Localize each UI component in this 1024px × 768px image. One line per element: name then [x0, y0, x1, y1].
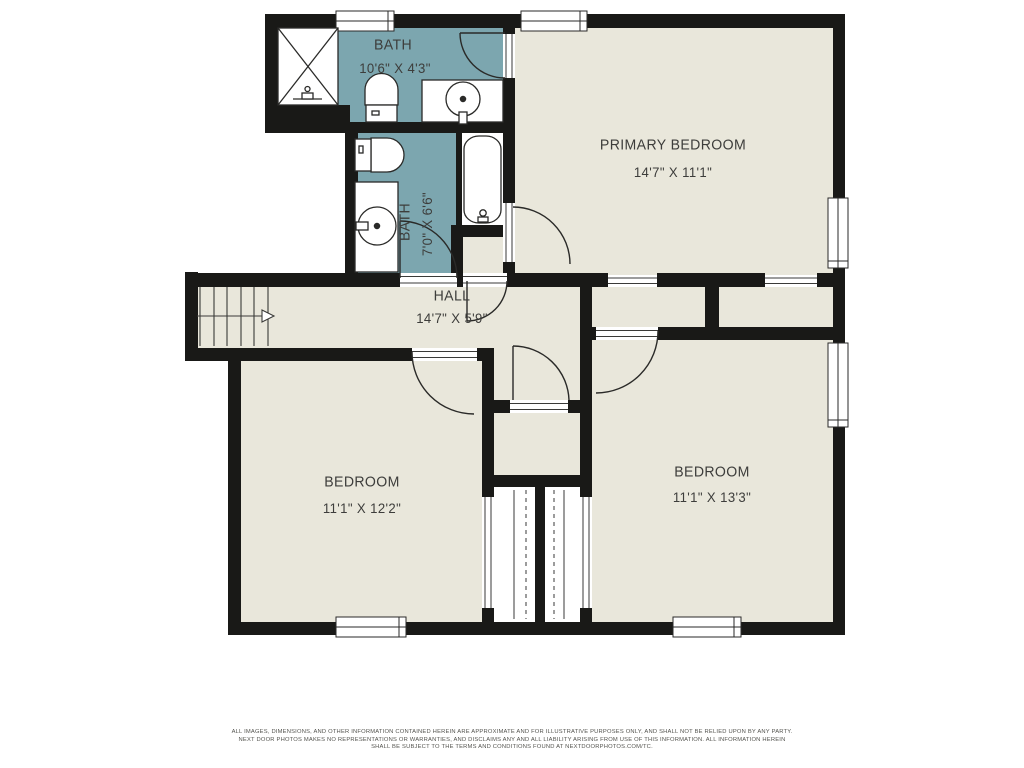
- wall: [503, 78, 515, 203]
- sink-icon: [355, 182, 398, 272]
- window: [521, 11, 587, 31]
- sink-icon: [422, 80, 503, 124]
- wall: [817, 273, 845, 287]
- wall: [185, 273, 400, 287]
- window: [828, 343, 848, 427]
- wall: [228, 348, 241, 622]
- bathtub-icon: [464, 136, 501, 223]
- wall: [535, 487, 545, 622]
- bedroom2-label: BEDROOM: [674, 464, 749, 481]
- window: [673, 617, 741, 637]
- closet-slider-opening: [482, 497, 494, 608]
- closet-bifold-opening: [765, 275, 817, 286]
- window: [336, 617, 406, 637]
- closet-slider-opening: [580, 497, 592, 608]
- bath2-dims: 7'0" X 6'6": [419, 192, 435, 256]
- wall: [457, 273, 463, 287]
- wall: [482, 348, 494, 497]
- hall-label: HALL: [434, 288, 471, 305]
- bath1-label: BATH: [374, 37, 412, 54]
- door-opening: [463, 273, 507, 287]
- disclaimer: ALL IMAGES, DIMENSIONS, AND OTHER INFORM…: [0, 729, 1024, 752]
- door-opening: [596, 327, 658, 340]
- hall-alcove-floor: [482, 348, 592, 487]
- wall: [185, 348, 412, 361]
- toilet-icon: [355, 138, 404, 172]
- door-opening: [412, 348, 477, 361]
- wall: [228, 622, 845, 635]
- closet-bifold-opening: [608, 275, 657, 286]
- bath1-dims: 10'6" X 4'3": [359, 60, 431, 76]
- wall: [350, 122, 515, 133]
- closet2-floor: [545, 487, 580, 622]
- wall: [580, 608, 592, 622]
- disclaimer-line: ALL IMAGES, DIMENSIONS, AND OTHER INFORM…: [0, 729, 1024, 737]
- bedroom2-floor: [592, 340, 833, 622]
- wall: [482, 608, 494, 622]
- toilet-icon: [365, 74, 398, 123]
- wall: [482, 400, 510, 413]
- disclaimer-line: NEXT DOOR PHOTOS MAKES NO REPRESENTATION…: [0, 737, 1024, 745]
- primary-bedroom-dims: 14'7" X 11'1": [634, 164, 712, 180]
- door-opening: [503, 34, 515, 78]
- wall: [265, 105, 350, 133]
- wall: [482, 475, 592, 487]
- hall-dims: 14'7" X 5'9": [416, 310, 488, 326]
- wall: [658, 327, 845, 340]
- wall: [592, 327, 596, 340]
- primary-bedroom-label: PRIMARY BEDROOM: [600, 137, 746, 154]
- bedroom1-label: BEDROOM: [324, 474, 399, 491]
- wall: [580, 273, 592, 340]
- wall: [657, 273, 765, 287]
- wall: [456, 133, 462, 225]
- wall: [265, 14, 278, 120]
- bath2-label: BATH: [397, 203, 414, 241]
- door-opening: [400, 273, 457, 287]
- wall: [833, 14, 845, 635]
- bedroom1-dims: 11'1" X 12'2": [323, 500, 401, 516]
- shower-icon: [278, 28, 338, 105]
- door-opening: [510, 400, 568, 413]
- window: [828, 198, 848, 268]
- door-opening: [503, 203, 515, 262]
- floor-plan: BATH 10'6" X 4'3" PRIMARY BEDROOM 14'7" …: [0, 0, 1024, 768]
- floor-plan-drawing: [0, 0, 1024, 768]
- bedroom1-floor: [241, 361, 482, 622]
- wall: [503, 262, 515, 273]
- wall: [705, 287, 719, 327]
- window: [336, 11, 394, 31]
- disclaimer-line: SHALL BE SUBJECT TO THE TERMS AND CONDIT…: [0, 744, 1024, 752]
- wall: [503, 273, 608, 287]
- linen-floor: [463, 237, 503, 273]
- bedroom2-dims: 11'1" X 13'3": [673, 489, 751, 505]
- wall: [580, 340, 592, 497]
